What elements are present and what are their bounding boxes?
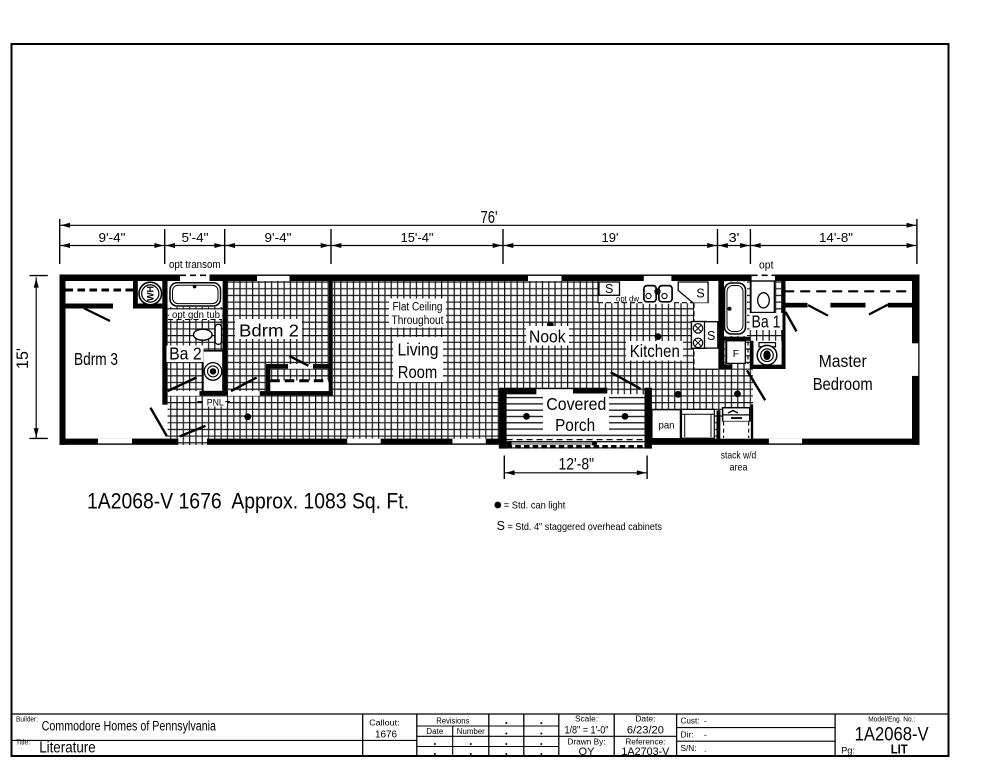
svg-text:opt: opt bbox=[759, 260, 774, 272]
svg-text:Pg:: Pg: bbox=[841, 745, 855, 756]
svg-text:F: F bbox=[733, 348, 739, 360]
svg-text:76': 76' bbox=[481, 207, 498, 227]
svg-text:area: area bbox=[730, 462, 748, 474]
svg-text:Builder:: Builder: bbox=[16, 715, 38, 724]
svg-text:Porch: Porch bbox=[555, 415, 595, 435]
svg-text:Bdrm 2: Bdrm 2 bbox=[239, 321, 299, 341]
svg-text:Scale:: Scale: bbox=[575, 715, 598, 724]
svg-text:Dir:: Dir: bbox=[681, 729, 694, 739]
svg-text:5'-4": 5'-4" bbox=[182, 230, 209, 245]
svg-text:LIT: LIT bbox=[891, 741, 908, 756]
svg-text:1/8" = 1'-0": 1/8" = 1'-0" bbox=[565, 724, 609, 736]
svg-text:Room: Room bbox=[398, 362, 438, 382]
svg-text:Kitchen: Kitchen bbox=[630, 341, 680, 361]
svg-text:Revisions: Revisions bbox=[436, 716, 469, 726]
svg-text:pan: pan bbox=[659, 420, 675, 432]
svg-text:Nook: Nook bbox=[529, 326, 566, 346]
svg-text:Throughout: Throughout bbox=[392, 315, 445, 327]
svg-text:Flat Ceiling: Flat Ceiling bbox=[393, 301, 443, 313]
svg-text:Model/Eng. No.:: Model/Eng. No.: bbox=[868, 714, 915, 723]
svg-text:S/N:: S/N: bbox=[681, 743, 697, 753]
svg-text:-: - bbox=[704, 729, 707, 739]
svg-text:Callout:: Callout: bbox=[369, 719, 400, 728]
svg-text:9'-4": 9'-4" bbox=[265, 230, 292, 245]
svg-text:Master: Master bbox=[819, 351, 867, 371]
svg-text:15'-4": 15'-4" bbox=[401, 230, 434, 245]
svg-text:-: - bbox=[704, 716, 707, 726]
svg-text:9'-4": 9'-4" bbox=[99, 230, 126, 245]
svg-text:opt transom: opt transom bbox=[169, 259, 221, 271]
svg-text:6/23/20: 6/23/20 bbox=[627, 724, 664, 736]
svg-text:= Std. can light: = Std. can light bbox=[504, 501, 566, 512]
svg-text:Cust:: Cust: bbox=[681, 716, 700, 726]
svg-text:12'-8": 12'-8" bbox=[559, 456, 595, 474]
svg-text:Living: Living bbox=[398, 340, 439, 360]
svg-text:Commodore Homes of Pennsylvani: Commodore Homes of Pennsylvania bbox=[42, 719, 217, 734]
svg-text:1676: 1676 bbox=[375, 729, 397, 741]
svg-text:3': 3' bbox=[729, 230, 740, 245]
svg-text:Number: Number bbox=[457, 727, 485, 736]
svg-text:opt dw: opt dw bbox=[616, 294, 640, 304]
svg-text:S: S bbox=[707, 329, 715, 343]
svg-text:14'-8": 14'-8" bbox=[819, 230, 853, 245]
svg-text:S: S bbox=[605, 282, 613, 296]
svg-text:S: S bbox=[696, 287, 704, 301]
svg-text:Date: Date bbox=[426, 727, 444, 736]
svg-text:stack w/d: stack w/d bbox=[721, 449, 757, 461]
svg-text:OY: OY bbox=[579, 746, 596, 758]
svg-text:S = Std. 4" staggered overhead: S = Std. 4" staggered overhead cabinets bbox=[497, 519, 662, 533]
svg-text:PNL: PNL bbox=[207, 397, 224, 408]
svg-text:Date:: Date: bbox=[635, 715, 655, 724]
svg-text:Ba 1: Ba 1 bbox=[752, 311, 781, 331]
svg-text:.: . bbox=[704, 744, 706, 754]
svg-text:1A2703-V: 1A2703-V bbox=[621, 746, 670, 758]
svg-text:WH: WH bbox=[145, 286, 155, 301]
svg-text:Ba 2: Ba 2 bbox=[169, 344, 202, 364]
svg-text:Bdrm 3: Bdrm 3 bbox=[74, 349, 118, 369]
svg-text:Title:: Title: bbox=[16, 738, 30, 747]
svg-text:1A2068-V 1676 Approx. 1083 Sq: 1A2068-V 1676 Approx. 1083 Sq. Ft. bbox=[87, 489, 409, 514]
svg-text:Bedroom: Bedroom bbox=[813, 374, 873, 394]
svg-text:19': 19' bbox=[602, 230, 619, 245]
svg-text:Literature: Literature bbox=[39, 739, 95, 756]
svg-text:15': 15' bbox=[13, 348, 32, 369]
svg-text:Covered: Covered bbox=[546, 394, 606, 414]
